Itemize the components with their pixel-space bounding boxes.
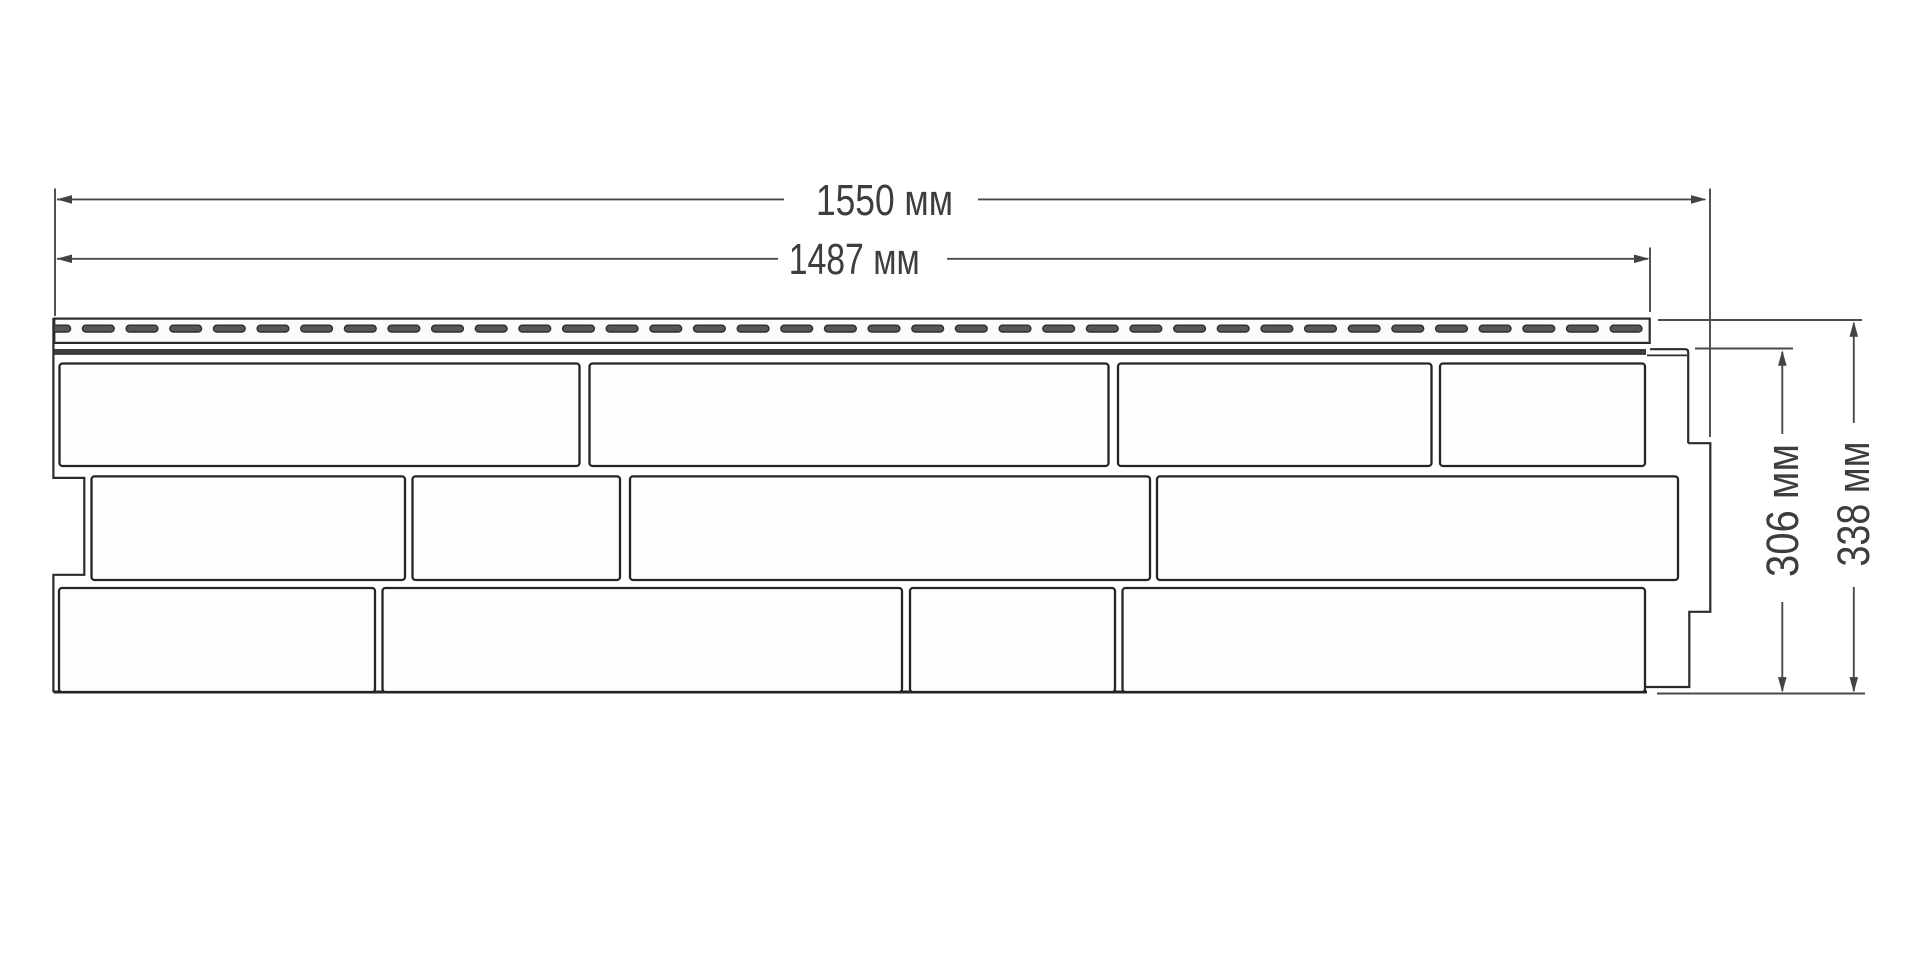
svg-text:338 мм: 338 мм	[1828, 442, 1879, 567]
svg-text:306 мм: 306 мм	[1757, 444, 1808, 577]
svg-text:1487 мм: 1487 мм	[789, 235, 920, 284]
svg-text:1550 мм: 1550 мм	[816, 176, 953, 225]
